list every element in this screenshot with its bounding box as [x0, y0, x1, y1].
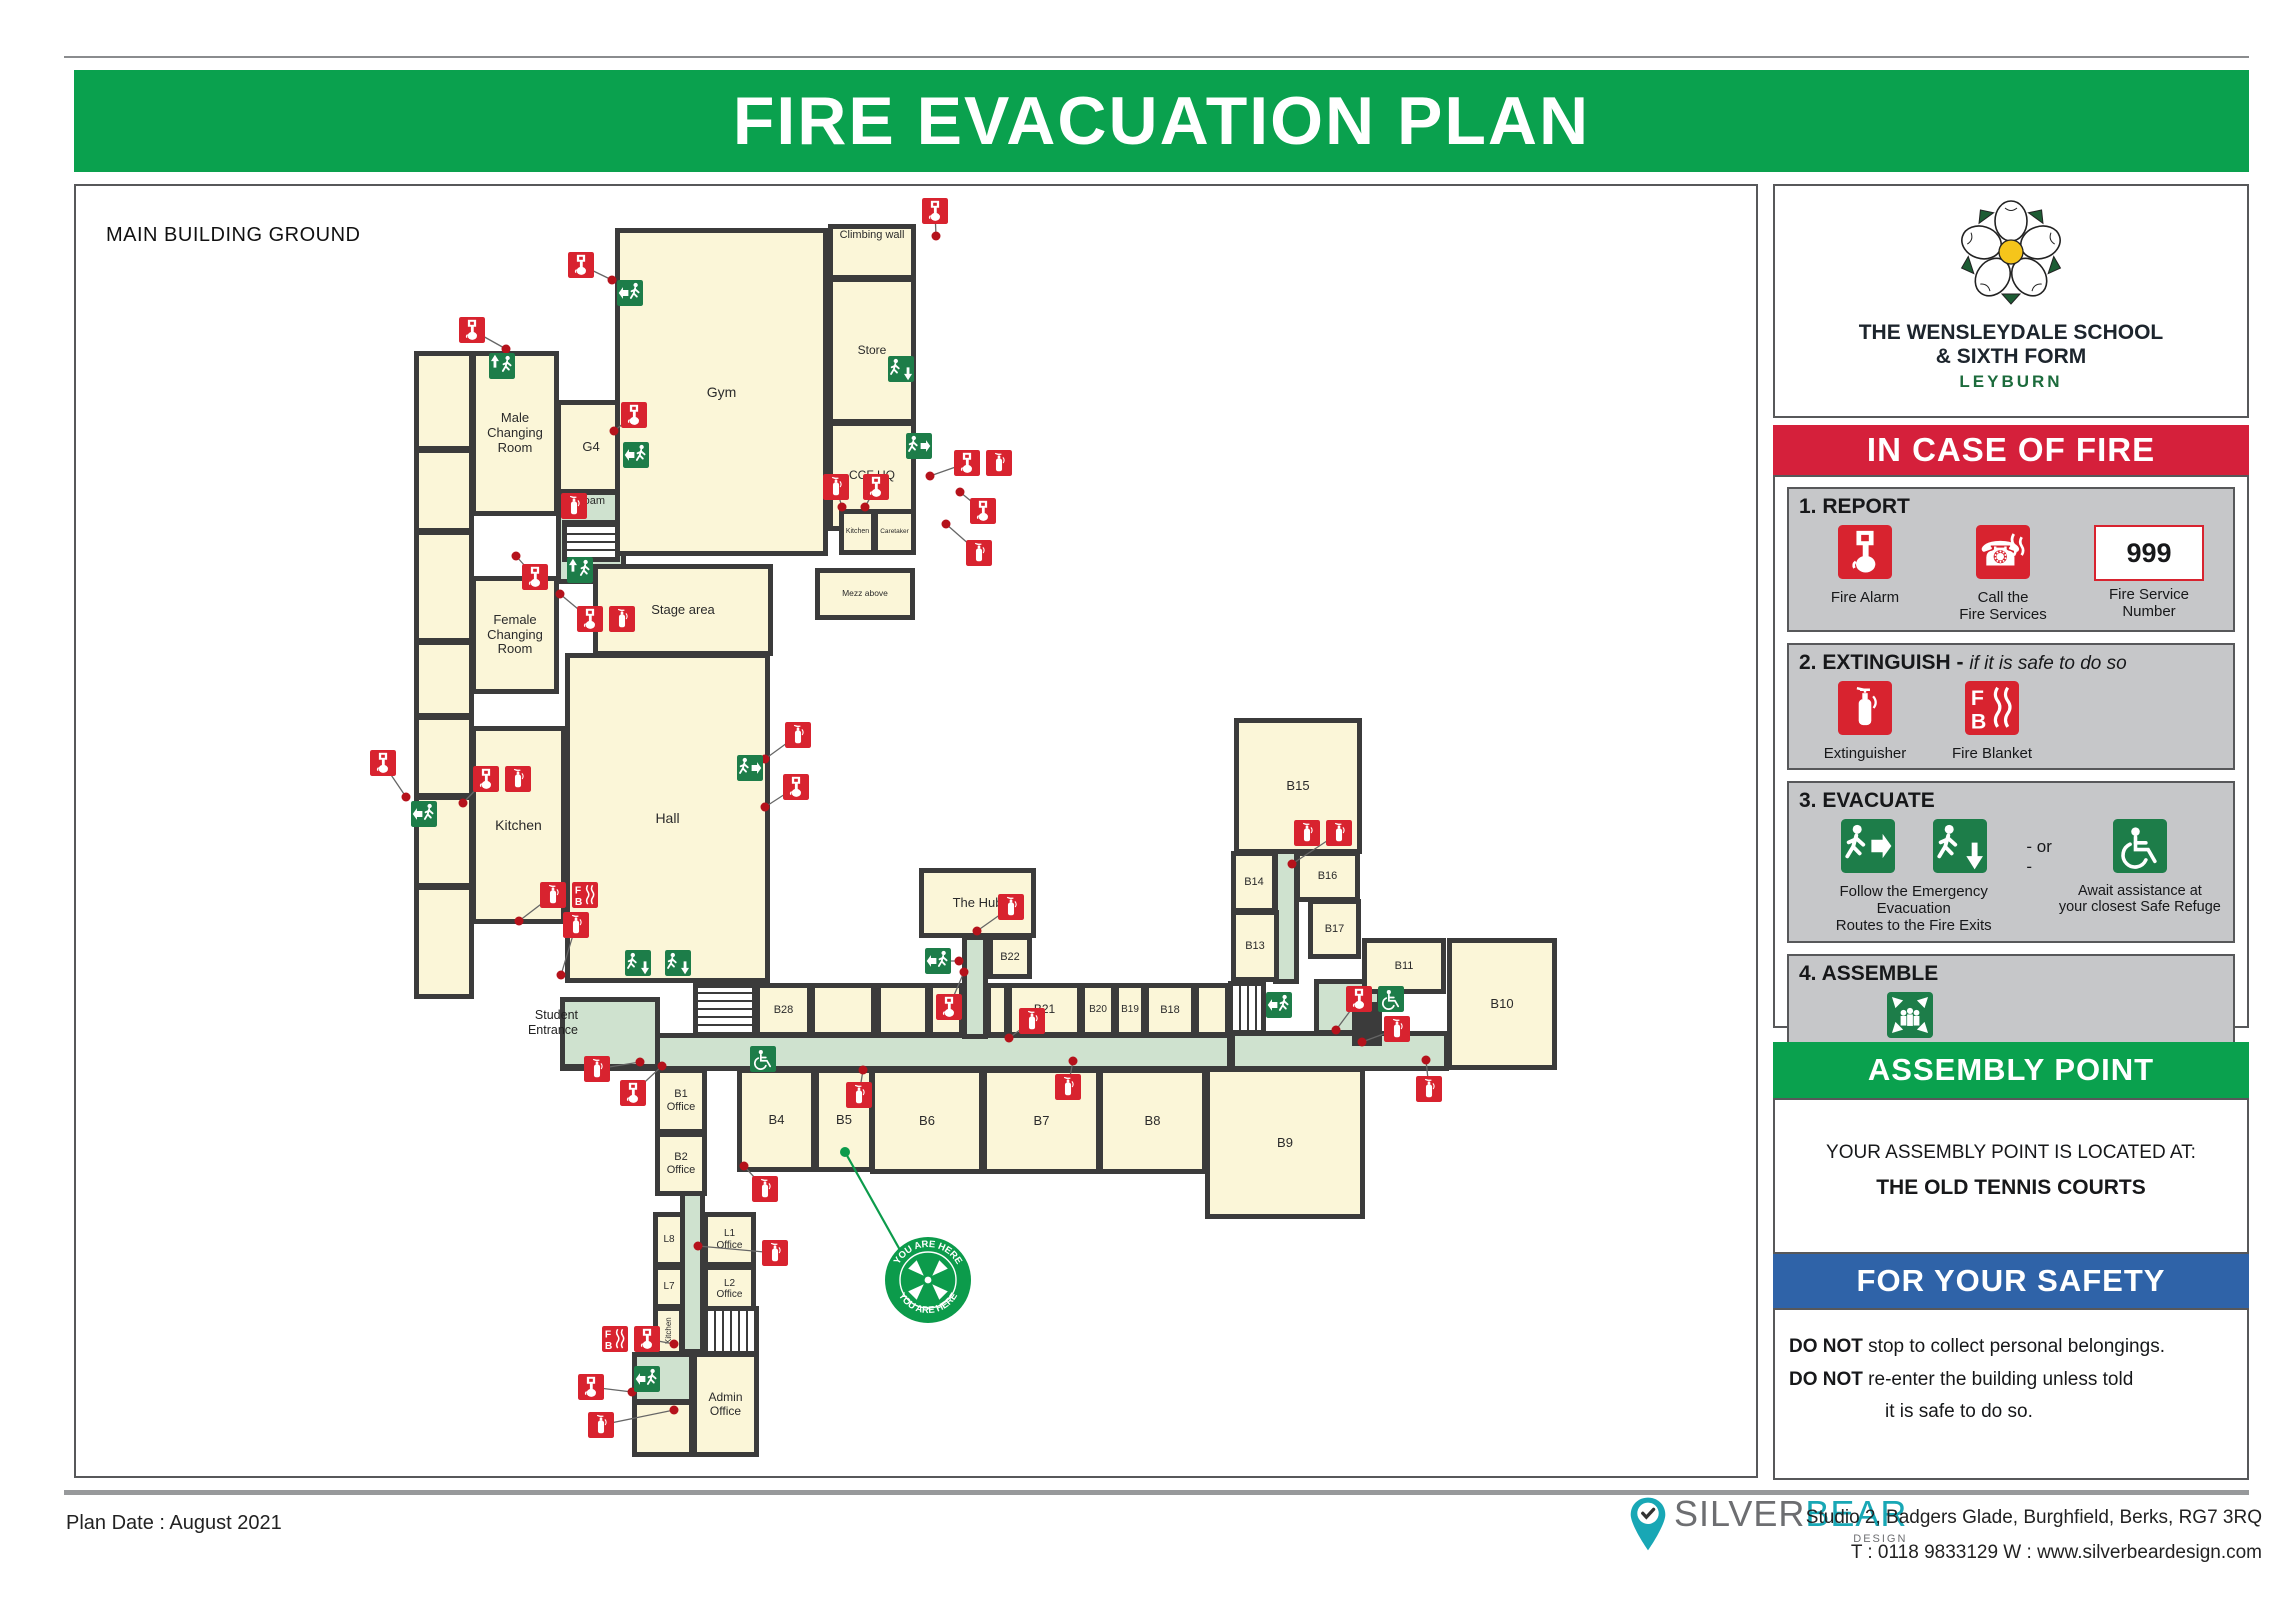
step-evacuate-title: 3. EVACUATE: [1799, 789, 2223, 813]
exit-l-icon: [411, 801, 437, 827]
safety-box: DO NOT stop to collect personal belongin…: [1773, 1308, 2249, 1480]
ext-icon: [1019, 1008, 1045, 1034]
ext-icon: [966, 540, 992, 566]
ext-icon: [762, 1240, 788, 1266]
evacuate-caption-left: Follow the Emergency Evacuation Routes t…: [1801, 883, 2026, 935]
fire-blanket-label: Fire Blanket: [1952, 745, 2032, 762]
fire-alarm-label: Fire Alarm: [1831, 589, 1899, 606]
safety-line-1: DO NOT stop to collect personal belongin…: [1789, 1336, 2247, 1358]
school-name-2: & SIXTH FORM: [1775, 345, 2247, 369]
step-evacuate: 3. EVACUATE Follow the Emergency Evacuat…: [1787, 781, 2235, 943]
instructions-box: 1. REPORT Fire Alarm ☎ Call the Fire Ser…: [1773, 475, 2249, 1028]
exit-r-icon: [906, 433, 932, 459]
footer-address: Studio 2, Badgers Glade, Burghfield, Ber…: [1806, 1500, 2262, 1570]
assembly-point-icon: [1887, 992, 1933, 1043]
school-name: THE WENSLEYDALE SCHOOL: [1775, 321, 2247, 345]
exit-r-icon: [737, 755, 763, 781]
svg-text:B: B: [575, 897, 582, 908]
svg-text:F: F: [605, 1329, 611, 1340]
ext-icon: [846, 1082, 872, 1108]
ext-icon: [588, 1412, 614, 1438]
step-assemble-title: 4. ASSEMBLE: [1799, 962, 2223, 986]
sidebar: THE WENSLEYDALE SCHOOL & SIXTH FORM LEYB…: [1773, 184, 2249, 1478]
step-report: 1. REPORT Fire Alarm ☎ Call the Fire Ser…: [1787, 487, 2235, 632]
alarm-icon: [863, 474, 889, 500]
ext-icon: [1055, 1074, 1081, 1100]
you-are-here-marker: YOU ARE HERE YOU ARE HERE: [884, 1236, 972, 1324]
alarm-icon: [578, 1374, 604, 1400]
alarm-icon: [473, 766, 499, 792]
exit-d-icon: [665, 950, 691, 976]
ext-icon: [1384, 1016, 1410, 1042]
fire-service-number-label: Fire Service Number: [2109, 586, 2189, 621]
svg-text:B: B: [1971, 709, 1986, 733]
student-entrance-label: Student Entrance: [490, 1008, 578, 1038]
ext-icon: [1416, 1076, 1442, 1102]
for-your-safety-banner: FOR YOUR SAFETY: [1773, 1254, 2249, 1308]
safety-line-3: it is safe to do so.: [1885, 1401, 2247, 1423]
safety-line-2: DO NOT re-enter the building unless told: [1789, 1369, 2247, 1391]
fire-service-number: 999: [2094, 525, 2204, 581]
fire-evacuation-poster: FIRE EVACUATION PLAN MAIN BUILDING GROUN…: [0, 0, 2292, 1624]
ext-icon: [584, 1056, 610, 1082]
fire-alarm-icon: [1838, 525, 1892, 584]
step-report-title: 1. REPORT: [1799, 495, 2223, 519]
svg-text:F: F: [1971, 685, 1984, 709]
page-title: FIRE EVACUATION PLAN: [733, 82, 1590, 160]
school-logo-box: THE WENSLEYDALE SCHOOL & SIXTH FORM LEYB…: [1773, 184, 2249, 418]
fb-icon: FB: [572, 882, 598, 908]
title-banner: FIRE EVACUATION PLAN: [74, 70, 2249, 172]
step-extinguish: 2. EXTINGUISH - if it is safe to do so E…: [1787, 643, 2235, 770]
safe-refuge-icon: [2113, 819, 2167, 878]
alarm-icon: [459, 317, 485, 343]
alarm-icon: [783, 774, 809, 800]
ext-icon: [1326, 820, 1352, 846]
exit-d-icon: [625, 950, 651, 976]
ext-icon: [609, 606, 635, 632]
extinguisher-icon: [1838, 681, 1892, 740]
exit-l-icon: [623, 442, 649, 468]
alarm-icon: [1346, 986, 1372, 1012]
refuge-icon: [750, 1046, 776, 1072]
alarm-icon: [936, 994, 962, 1020]
evacuate-caption-right: Await assistance at your closest Safe Re…: [2059, 883, 2221, 916]
ext-icon: [785, 722, 811, 748]
alarm-icon: [922, 198, 948, 224]
plan-date: Plan Date : August 2021: [66, 1512, 282, 1535]
ext-icon: [823, 474, 849, 500]
or-text: - or -: [2026, 819, 2058, 935]
exit-l-icon: [634, 1366, 660, 1392]
assembly-point-banner: ASSEMBLY POINT: [1773, 1042, 2249, 1098]
alarm-icon: [577, 606, 603, 632]
refuge-icon: [1378, 986, 1404, 1012]
school-town: LEYBURN: [1775, 372, 2247, 392]
alarm-icon: [621, 402, 647, 428]
svg-text:B: B: [605, 1341, 612, 1352]
assembly-location-intro: YOUR ASSEMBLY POINT IS LOCATED AT:: [1775, 1142, 2247, 1164]
svg-text:F: F: [575, 885, 581, 896]
contact-line: T : 0118 9833129 W : www.silverbeardesig…: [1806, 1535, 2262, 1570]
ext-icon: [561, 493, 587, 519]
in-case-of-fire-banner: IN CASE OF FIRE: [1773, 425, 2249, 475]
exit-l-icon: [925, 948, 951, 974]
assembly-location: THE OLD TENNIS COURTS: [1775, 1176, 2247, 1200]
exit-d-icon: [888, 356, 914, 382]
ext-icon: [563, 912, 589, 938]
ext-icon: [998, 894, 1024, 920]
call-fire-services-icon: ☎: [1976, 525, 2030, 584]
exit-u-icon: [567, 557, 593, 583]
fire-blanket-icon: FB: [1965, 681, 2019, 740]
assembly-point-box: YOUR ASSEMBLY POINT IS LOCATED AT: THE O…: [1773, 1098, 2249, 1254]
alarm-icon: [522, 564, 548, 590]
silverbear-pin-icon: [1628, 1496, 1668, 1557]
step-extinguish-title: 2. EXTINGUISH - if it is safe to do so: [1799, 651, 2223, 675]
footer-rule: [64, 1490, 2249, 1495]
alarm-icon: [568, 252, 594, 278]
floor-plan-panel: MAIN BUILDING GROUND FoamMale Changing R…: [74, 184, 1758, 1478]
exit-u-icon: [489, 353, 515, 379]
alarm-icon: [970, 498, 996, 524]
exit-l-icon: [1266, 992, 1292, 1018]
ext-icon: [1294, 820, 1320, 846]
exit-l-icon: [617, 280, 643, 306]
call-fire-services-label: Call the Fire Services: [1959, 589, 2047, 624]
ext-icon: [986, 450, 1012, 476]
ext-icon: [540, 882, 566, 908]
ext-icon: [752, 1176, 778, 1202]
top-rule: [64, 56, 2249, 58]
alarm-icon: [954, 450, 980, 476]
ext-icon: [505, 766, 531, 792]
alarm-icon: [370, 750, 396, 776]
exit-right-icon: [1841, 819, 1895, 878]
extinguisher-label: Extinguisher: [1824, 745, 1907, 762]
yorkshire-rose-icon: [1945, 299, 2077, 316]
exit-down-icon: [1933, 819, 1987, 878]
address-line: Studio 2, Badgers Glade, Burghfield, Ber…: [1806, 1500, 2262, 1535]
alarm-icon: [620, 1080, 646, 1106]
alarm-icon: [634, 1326, 660, 1352]
fb-icon: FB: [602, 1326, 628, 1352]
